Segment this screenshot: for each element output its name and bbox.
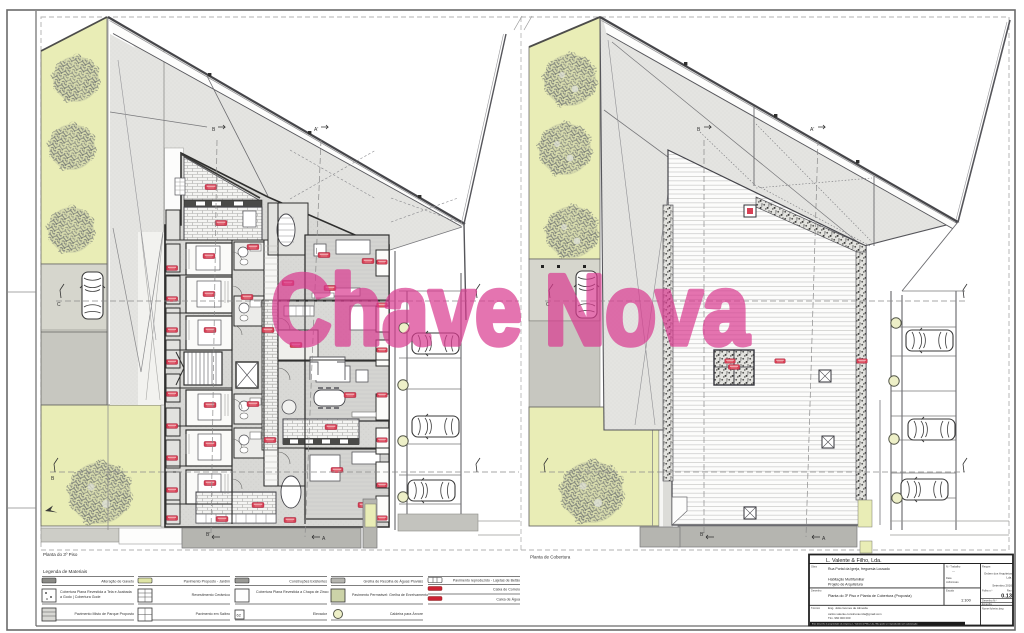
svg-text:Habitação Multifamiliar: Habitação Multifamiliar [828,578,865,582]
svg-text:Caixa de Correio: Caixa de Correio [493,588,520,592]
svg-text:Pavimento reproduzido - Lajeta: Pavimento reproduzido - Lajetas de Betão [453,579,520,583]
svg-text:Desenho: Desenho [811,589,822,593]
svg-text:Nome ficheiro.dwg: Nome ficheiro.dwg [982,606,1004,610]
svg-text:Lda.: Lda. [1006,576,1012,580]
svg-text:Este desenho é propriedade da: Este desenho é propriedade da empresa L.… [812,622,918,625]
svg-text:Cobertura Plana Revestida a Ch: Cobertura Plana Revestida a Chapa de Zin… [256,590,329,594]
svg-text:L. Valente & Filho, Lda.: L. Valente & Filho, Lda. [826,558,882,564]
svg-text:Revestimento Cerâmico: Revestimento Cerâmico [192,593,230,597]
svg-text:Alteração de Gaveto: Alteração de Gaveto [101,580,134,584]
svg-text:A': A' [810,127,814,133]
svg-text:Chave Nova: Chave Nova [271,254,750,365]
svg-text:Requer.: Requer. [982,565,991,569]
svg-text:Planta de Cobertura: Planta de Cobertura [530,555,571,560]
svg-text:Caixa de Água: Caixa de Água [496,598,520,602]
svg-text:---: --- [952,570,955,574]
svg-text:Rua Portal da Igreja, freguesi: Rua Portal da Igreja, freguesia Lousado [828,567,890,571]
svg-text:Eng. João Gomes de Almeida: Eng. João Gomes de Almeida [828,606,868,610]
svg-text:Técnico: Técnico [811,606,821,610]
svg-text:Rev.: Rev. [1007,589,1012,593]
svg-text:N.º Trabalho: N.º Trabalho [946,565,961,569]
svg-text:Folha n.º: Folha n.º [982,589,992,593]
svg-text:Desenho N.º: Desenho N.º [982,599,997,603]
svg-text:Pavimento Misto de Parque Prop: Pavimento Misto de Parque Proposto [74,612,134,616]
svg-text:a Godo | Cobertura Gode: a Godo | Cobertura Gode [60,595,101,599]
svg-text:Pavimento em Saibro: Pavimento em Saibro [196,612,230,616]
svg-text:Emenda: Emenda [982,602,992,606]
svg-text:Data: Data [946,576,952,580]
svg-text:Caldeira para Árvore: Caldeira para Árvore [390,612,423,616]
svg-text:B': B' [206,532,210,538]
svg-text:Planta do 3º Piso: Planta do 3º Piso [43,552,78,557]
svg-text:Planta do 3º Piso e Planta de: Planta do 3º Piso e Planta de Cobertura … [828,594,912,598]
svg-text:Projeto de Arquitetura: Projeto de Arquitetura [828,583,863,587]
svg-text:Obra: Obra [811,565,817,569]
svg-text:Grelha de Recolha de Águas Plu: Grelha de Recolha de Águas Pluviais [363,580,423,584]
svg-text:B': B' [700,532,704,538]
svg-text:C: C [57,302,61,308]
svg-text:Tlm. 960 000 000: Tlm. 960 000 000 [828,616,851,620]
svg-text:1:100: 1:100 [961,597,972,602]
svg-text:Pavimento Proposto - Jardim: Pavimento Proposto - Jardim [184,580,230,584]
svg-text:Setembro 2016: Setembro 2016 [992,583,1012,587]
svg-text:Legenda de Materiais: Legenda de Materiais [43,569,88,574]
svg-text:Escala: Escala [946,589,954,593]
svg-text:62: 62 [237,613,242,618]
svg-text:A': A' [314,127,318,133]
svg-text:Pavimento Permeável: Grelha de: Pavimento Permeável: Grelha de Enrelvame… [352,593,428,597]
svg-text:Construções Existentes: Construções Existentes [289,580,327,584]
svg-text:Cobertura Plana Revestida a Te: Cobertura Plana Revestida a Tela e Acaba… [60,590,132,594]
svg-text:Elevador: Elevador [313,612,328,616]
svg-text:Julho/maio: Julho/maio [946,580,959,584]
